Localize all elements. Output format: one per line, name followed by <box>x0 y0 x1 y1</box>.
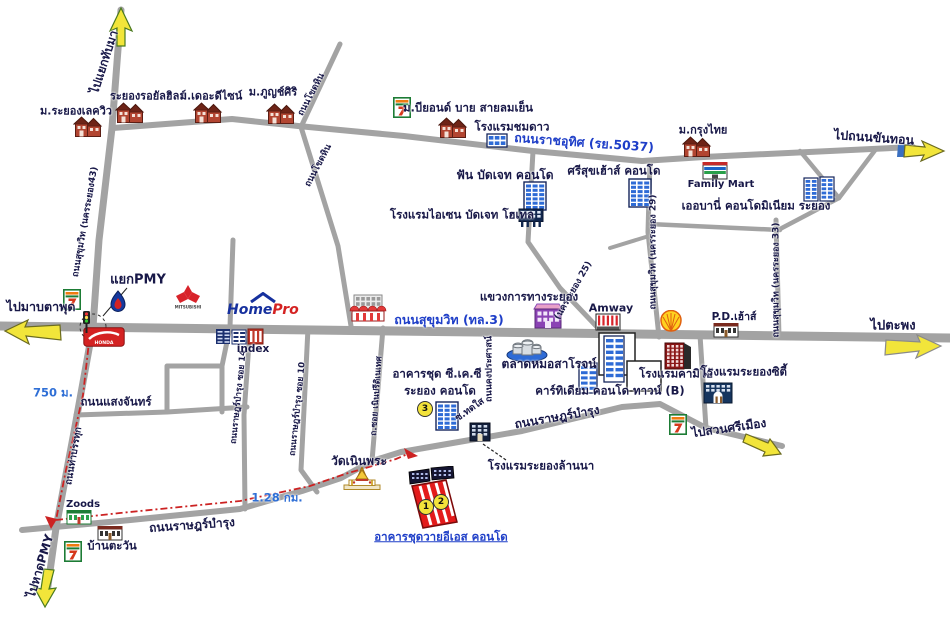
road-soi-noen <box>372 328 383 461</box>
road-nakhon25 <box>528 151 598 328</box>
arrow-to-thapma <box>110 8 132 46</box>
road-srisuk-stub <box>610 236 649 248</box>
road-nakhon33 <box>776 220 779 337</box>
road-network <box>0 0 950 644</box>
rayong-map: MITSUBISHIHONDAHomePro ไปแยกทับมาม.ระยอง… <box>0 0 950 644</box>
road-ratcha-uthit <box>113 119 913 161</box>
road-suansri-link <box>700 335 706 428</box>
road-triangle-west <box>800 151 839 198</box>
pmy-label-leader <box>103 288 127 316</box>
arrow-to-khanthon <box>904 141 944 161</box>
arrow-to-hat-pmy <box>34 569 56 607</box>
road-triangle-east <box>839 149 876 198</box>
road-khothin <box>301 44 351 326</box>
road-soi14 <box>244 328 250 509</box>
lanna-label-leader <box>483 444 506 460</box>
road-sukhumvit-main <box>0 326 950 338</box>
road-nakhon29 <box>648 161 659 337</box>
road-soi10 <box>301 328 317 492</box>
road-connector-29-33 <box>649 224 780 230</box>
road-triangle-south <box>780 198 839 229</box>
road-block <box>167 366 222 412</box>
